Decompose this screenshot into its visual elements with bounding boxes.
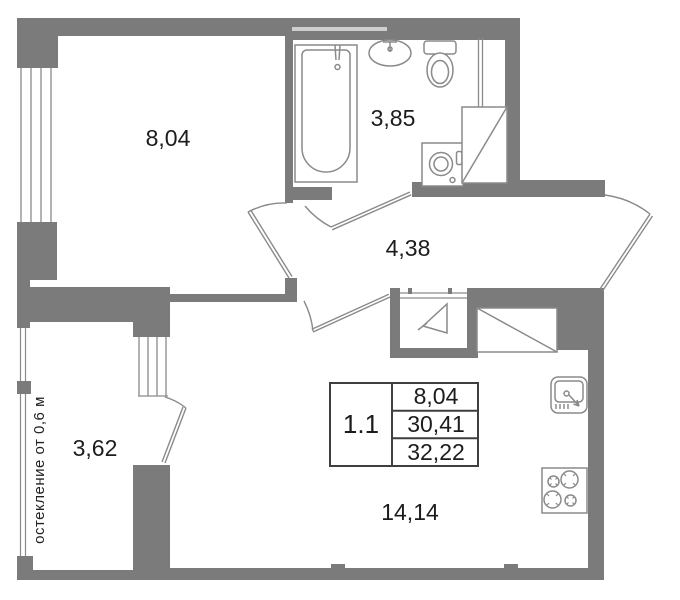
info-room-area: 8,04 [414, 383, 459, 409]
wall-segment [170, 294, 297, 302]
wall-segment [331, 564, 345, 569]
stove-icon [542, 468, 587, 513]
info-table: 1.1 8,04 30,41 32,22 [330, 383, 478, 466]
wall-segment [17, 222, 57, 280]
shaft-partition-line [479, 38, 483, 107]
unit-number: 1.1 [343, 409, 379, 439]
entrance-door [600, 195, 653, 291]
wall-segment [390, 348, 478, 358]
wall-segment [557, 308, 588, 350]
glazing-note: остекление от 0,6 м [31, 396, 48, 544]
wall-segment [285, 187, 332, 200]
balcony-window [138, 337, 168, 396]
info-living-area: 30,41 [407, 411, 465, 437]
hallway-area-label: 4,38 [386, 235, 431, 261]
wall-segment [135, 568, 604, 580]
bathroom-sink-icon [369, 40, 411, 66]
wall-segment [17, 18, 58, 68]
wall-segment [285, 33, 293, 203]
wall-segment [390, 288, 400, 348]
vent-valve-icon [418, 304, 447, 333]
wall-segment [133, 287, 170, 337]
balcony-area-label: 3,62 [73, 435, 118, 461]
wall-segment [467, 288, 604, 308]
living-room-door [304, 294, 390, 332]
washing-machine-icon [422, 143, 463, 186]
kitchen-sink-icon [551, 377, 587, 413]
wall-segment [467, 288, 477, 348]
vent-shaft-icon [462, 107, 507, 183]
wall-segment [17, 570, 135, 580]
bedroom-area-label: 8,04 [146, 125, 191, 151]
info-total-area: 32,22 [407, 439, 465, 465]
balcony-glazing [21, 328, 26, 556]
bedroom-door [248, 203, 292, 278]
niche-lintel [400, 288, 467, 298]
wall-segment [17, 381, 31, 394]
kitchen-living-area-label: 14,14 [381, 499, 439, 525]
walls [17, 18, 605, 580]
wall-segment [588, 288, 604, 580]
floorplan: 8,04 3,85 4,38 3,62 14,14 остекление от … [0, 0, 680, 600]
balcony-door [162, 397, 186, 463]
wall-segment [520, 180, 605, 197]
wall-segment [504, 564, 518, 569]
bathtub-icon [295, 45, 357, 182]
wall-segment [133, 465, 170, 570]
bathroom-area-label: 3,85 [371, 105, 416, 131]
floorplan-drawing: 8,04 3,85 4,38 3,62 14,14 остекление от … [0, 0, 680, 600]
bedroom-window [21, 68, 51, 222]
toilet-icon [424, 41, 456, 87]
wall-inlay-line [292, 27, 387, 31]
wardrobe-icon [477, 308, 557, 352]
